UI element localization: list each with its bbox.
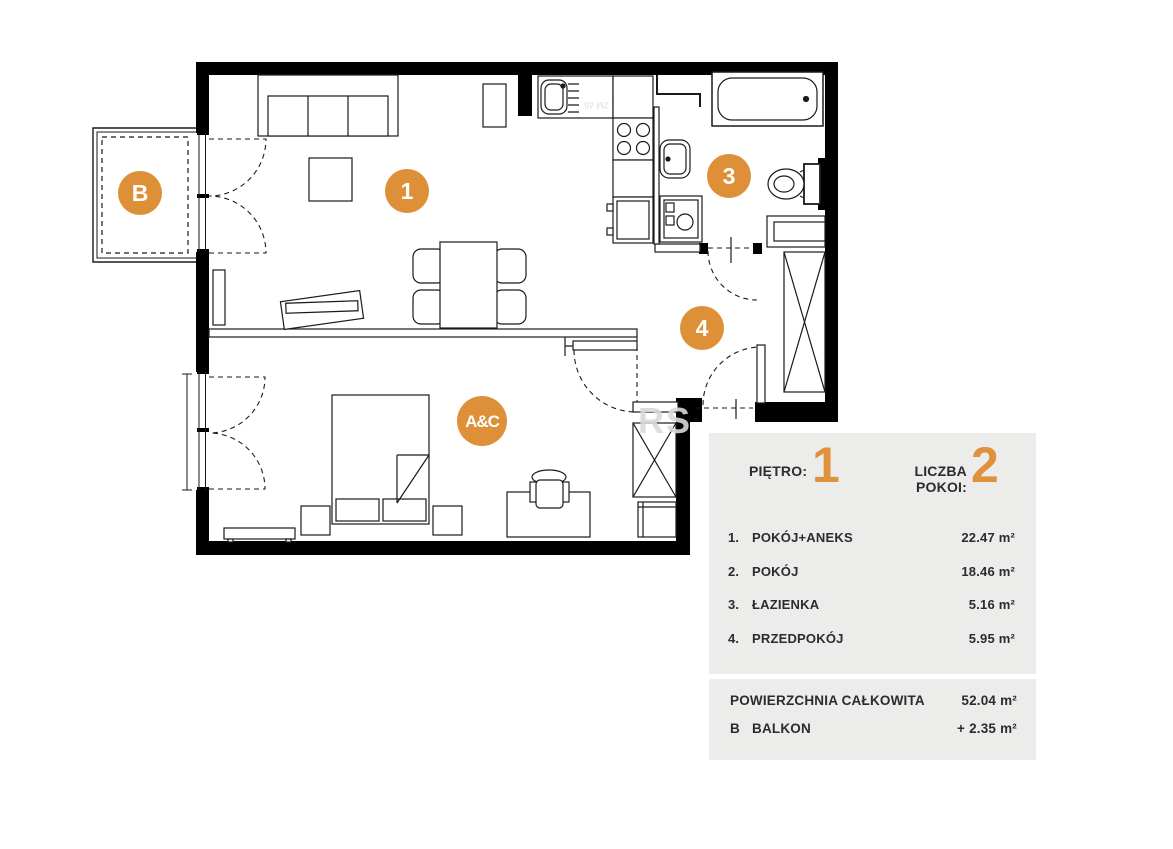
room-marker-1: 1 [385,169,429,213]
room-area: 5.16 m² [969,597,1015,612]
balcony-marker: B [118,171,162,215]
room-number: 4. [728,631,745,646]
floor-label: PIĘTRO: [749,463,807,479]
agency-logo-watermark: A&C [457,396,507,446]
room-name: ŁAZIENKA [752,597,819,612]
room-number: 3. [728,597,745,612]
room-area: 22.47 m² [961,530,1015,545]
totals-panel: POWIERZCHNIA CAŁKOWITA 52.04 m² B BALKON… [709,679,1036,760]
floor-value: 1 [812,445,840,485]
room-name: PRZEDPOKÓJ [752,631,844,646]
room-number: 1. [728,530,745,545]
coffee-table [309,158,352,201]
room-row: 3. ŁAZIENKA 5.16 m² [728,597,1015,612]
balcony-letter: B [730,721,745,736]
bedroom [224,395,676,542]
room-marker-3: 3 [707,154,751,198]
rooms-count-label: LICZBA POKOI: [867,463,967,495]
total-area-row: POWIERZCHNIA CAŁKOWITA 52.04 m² [730,693,1017,708]
shelf-unit [483,84,506,127]
nightstand-right [433,506,462,535]
room-area: 18.46 m² [961,564,1015,579]
dining-table [440,242,497,328]
watermark-text: RS [638,403,692,439]
desk-chair-icon [530,470,569,508]
total-area-label: POWIERZCHNIA CAŁKOWITA [730,693,925,708]
bath-nib-wall [657,75,700,107]
room-name: POKÓJ [752,564,799,579]
dining-set [413,242,526,328]
total-area-value: 52.04 m² [961,693,1017,708]
room-row: 2. POKÓJ 18.46 m² [728,564,1015,579]
floorplan-page: 1 3 4 B A&C RS 2M 45 PIĘTRO: 1 LICZBA PO… [0,0,1173,849]
dresser [224,528,295,539]
dimension-artifact: 2M 45 [584,100,609,110]
door-leaves [565,337,765,403]
info-panel: PIĘTRO: 1 LICZBA POKOI: 2 1. POKÓJ+ANEKS… [709,433,1036,674]
room-number: 2. [728,564,745,579]
toilet-icon [804,164,820,204]
balcony-row: B BALKON + 2.35 m² [730,721,1017,736]
nightstand-left [301,506,330,535]
room-name: POKÓJ+ANEKS [752,530,853,545]
balcony-area-value: + 2.35 m² [957,721,1017,736]
room-row: 1. POKÓJ+ANEKS 22.47 m² [728,530,1015,545]
rooms-count-value: 2 [971,445,999,485]
room-area: 5.95 m² [969,631,1015,646]
living-room [213,75,526,329]
balcony-label: BALKON [752,721,811,736]
radiator [213,270,225,325]
hallway [767,216,825,392]
kitchen [483,76,653,243]
tv-icon [286,301,358,314]
room-marker-4: 4 [680,306,724,350]
room-row: 4. PRZEDPOKÓJ 5.95 m² [728,631,1015,646]
